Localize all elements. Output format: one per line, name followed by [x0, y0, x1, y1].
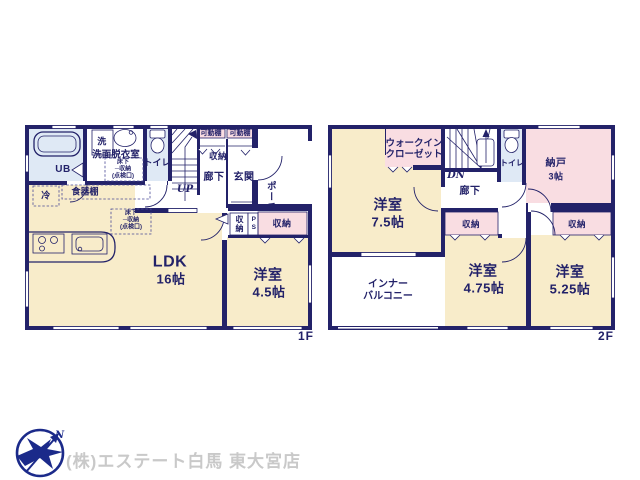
hallway-2f-label: 廊下: [460, 186, 481, 198]
room-right-size-label: 5.25帖: [550, 281, 591, 296]
toilet-icon-1f: [150, 130, 165, 153]
ldk-name-label: LDK: [153, 254, 187, 273]
storeroom-size-label: 3帖: [548, 172, 563, 183]
toilet-icon-2f: [504, 130, 519, 153]
floor1-tag: 1F: [298, 329, 314, 343]
stairs-down-icon: [447, 129, 494, 168]
porch-label: ポーチ: [265, 181, 275, 213]
fridge-label: 冷: [41, 191, 51, 202]
toilet-2f-label: トイレ: [500, 158, 524, 167]
bedroom-1f-size-label: 4.5帖: [252, 284, 285, 299]
cupboard-label: 食器棚: [71, 187, 98, 198]
floor2-tag: 2F: [598, 329, 614, 343]
movable-shelf-left-label: 可動棚: [201, 129, 222, 137]
bedroom-closet-label: 収納: [272, 219, 291, 230]
room-main-size-label: 7.5帖: [371, 214, 404, 229]
bedroom-1f-name-label: 洋室: [254, 267, 283, 284]
toilet-1f-label: トイレ: [143, 158, 170, 169]
inner-balcony-label: インナー バルコニー: [363, 279, 413, 303]
entrance-label: 玄関: [234, 172, 255, 184]
hall-closet-label: 収納: [209, 151, 227, 161]
floorplan-page: UB 洗 洗面脱衣室 床下 ─収納 (点検口) トイレ 可動棚 可動棚 収納 廊…: [0, 0, 640, 480]
room-main-name-label: 洋室: [374, 197, 403, 214]
movable-shelf-right-label: 可動棚: [230, 129, 251, 137]
laundry-label: 洗: [97, 137, 107, 148]
ub-label: UB: [55, 164, 70, 176]
stairs-down-label: DN: [447, 170, 465, 182]
pipe-space-label: PS: [250, 216, 257, 232]
underfloor-storage-washroom-label: 床下 ─収納 (点検口): [112, 159, 134, 180]
north-label: N: [55, 430, 64, 441]
balcony-rail-line: [338, 327, 438, 329]
storeroom-name-label: 納戸: [546, 158, 567, 170]
room-right-name-label: 洋室: [556, 264, 585, 281]
side-closet-label: 収納: [235, 215, 243, 233]
ldk-size-label: 16帖: [157, 271, 186, 286]
stairs-up-label: UP: [177, 184, 193, 196]
floor1-plan: UB 洗 洗面脱衣室 床下 ─収納 (点検口) トイレ 可動棚 可動棚 収納 廊…: [25, 125, 312, 330]
hallway-1f-label: 廊下: [204, 172, 225, 184]
walkin-closet-label: ウォークイン クローゼット: [385, 138, 442, 160]
room-mid-name-label: 洋室: [469, 263, 498, 280]
closet-mid-label: 収納: [462, 219, 480, 229]
floor2-plan: ウォークイン クローゼット 洋室 7.5帖 DN 廊下 トイレ 納戸 3帖 収納…: [328, 125, 615, 330]
room-mid-size-label: 4.75帖: [464, 280, 505, 295]
vanity-sink-icon: [114, 130, 136, 147]
underfloor-storage-kitchen-label: 床下 ─収納 (点検口): [120, 210, 142, 231]
closet-right-label: 収納: [568, 219, 586, 229]
company-name: (株)エステート白馬 東大宮店: [66, 447, 301, 472]
